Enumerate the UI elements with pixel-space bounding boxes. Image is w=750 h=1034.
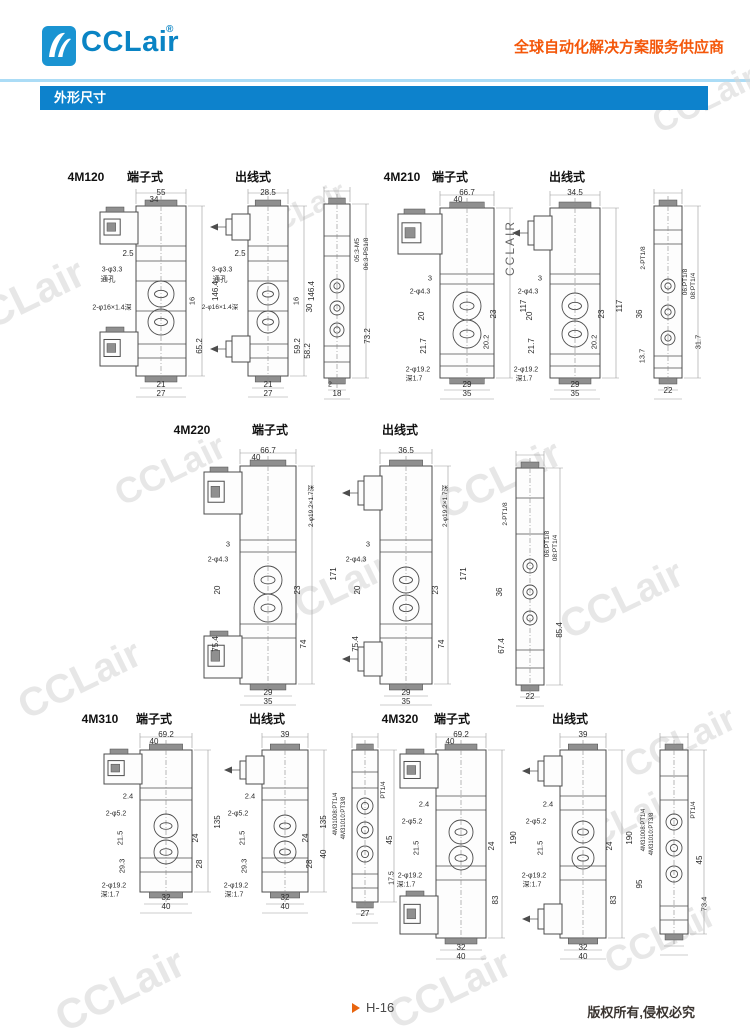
drawing-title: 出线式: [549, 171, 585, 183]
page-number: H-16: [366, 1000, 394, 1015]
page-marker-triangle-icon: [352, 1003, 360, 1013]
drawing-title: 出线式: [249, 713, 285, 725]
drawing-title: 4M320: [382, 713, 419, 725]
drawing-title: 4M120: [68, 171, 105, 183]
drawing-title: 4M210: [384, 171, 421, 183]
drawing-title: 端子式: [434, 713, 470, 725]
drawing-title: 端子式: [127, 171, 163, 183]
drawing-title: 端子式: [136, 713, 172, 725]
drawing-title: 端子式: [432, 171, 468, 183]
drawing-title: 出线式: [552, 713, 588, 725]
drawing-title: 出线式: [382, 424, 418, 436]
drawing-title: 出线式: [235, 171, 271, 183]
catalog-page: CCLair ® 全球自动化解决方案服务供应商 外形尺寸 CCLairCCLai…: [0, 0, 750, 1034]
copyright-notice: 版权所有,侵权必究: [587, 1002, 695, 1021]
page-number-block: H-16: [352, 1000, 394, 1015]
drawing-title: 端子式: [252, 424, 288, 436]
drawing-titles-layer: 4M120端子式出线式4M210端子式出线式4M220端子式出线式4M310端子…: [0, 0, 750, 1034]
drawing-title: 4M310: [82, 713, 119, 725]
drawing-title: 4M220: [174, 424, 211, 436]
